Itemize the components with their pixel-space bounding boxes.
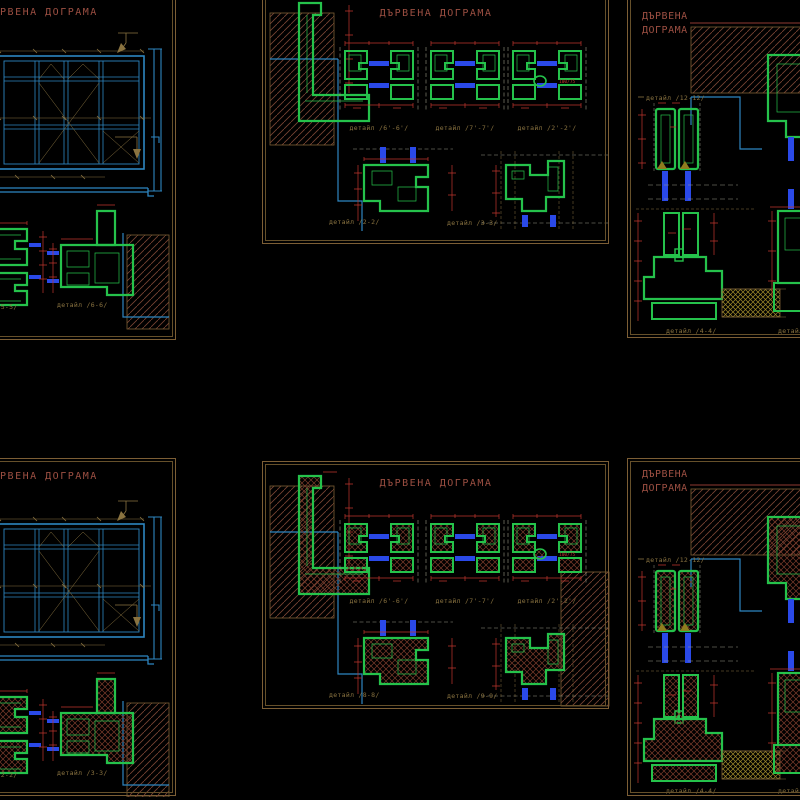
- sheet-title-line2: ДОГРАМА: [642, 25, 688, 36]
- sheet-title-line1: ДЪРВЕНА: [642, 469, 688, 480]
- wall-hatch: [561, 572, 609, 706]
- cad-drawing-canvas: ДЪРВЕНА ДОГРАМА детайл /5-5/ детайл /6-6…: [0, 0, 800, 800]
- sheet-bottom-right: ДЪРВЕНА ДОГРАМА детайл /12-12/ детайл /4…: [627, 458, 800, 796]
- detail-label: детайл: [778, 787, 800, 795]
- detail-label: детайл /3-3/: [57, 769, 108, 777]
- window-elevation-drawing: [0, 33, 169, 329]
- detail-label: детайл /2'-2'/: [518, 597, 577, 605]
- detail-label: детайл /4-4/: [666, 787, 717, 795]
- sheet-top-middle: ДЪРВЕНА ДОГРАМА детайл /6'-6'/ детайл /7…: [262, 0, 609, 244]
- joinery-sections-drawing: [270, 472, 608, 704]
- sheet-title-line1: ДЪРВЕНА: [642, 11, 688, 22]
- sheet-title: ДЪРВЕНА ДОГРАМА: [0, 7, 98, 18]
- sheet-bottom-left: ДЪРВЕНА ДОГРАМА детайл /2-2/ детайл /3-3…: [0, 458, 176, 796]
- detail-label: детайл /7'-7'/: [436, 597, 495, 605]
- detail-label: детайл /6'-6'/: [350, 597, 409, 605]
- detail-label: детайл /2-2/: [0, 771, 18, 779]
- sheet-bottom-middle: ДЪРВЕНА ДОГРАМА детайл /6'-6'/ детайл /7…: [262, 461, 609, 709]
- detail-label: детайл /7'-7'/: [436, 124, 495, 132]
- jamb-sill-sections-drawing: [634, 485, 800, 783]
- detail-label: детайл: [778, 327, 800, 335]
- detail-label: детайл /12-12/: [646, 556, 705, 564]
- detail-label: детайл /12-12/: [646, 94, 705, 102]
- size-note: 100/75: [559, 79, 576, 85]
- sheet-title: ДЪРВЕНА ДОГРАМА: [380, 8, 493, 19]
- sheet-top-left: ДЪРВЕНА ДОГРАМА детайл /5-5/ детайл /6-6…: [0, 0, 176, 340]
- detail-label: детайл /6-6/: [57, 301, 108, 309]
- sheet-top-right: ДЪРВЕНА ДОГРАМА детайл /12-12/ детайл /4…: [627, 0, 800, 338]
- jamb-sill-sections-drawing: [634, 23, 800, 321]
- joinery-sections-drawing: [270, 0, 608, 231]
- detail-label: детайл /8-8/: [329, 691, 380, 699]
- detail-label: детайл /3-3/: [447, 219, 498, 227]
- detail-label: детайл /2'-2'/: [518, 124, 577, 132]
- sheet-title: ДЪРВЕНА ДОГРАМА: [0, 471, 98, 482]
- detail-label: детайл /5-5/: [0, 303, 18, 311]
- sheet-title-line2: ДОГРАМА: [642, 483, 688, 494]
- size-note: 100/75: [559, 552, 576, 558]
- window-elevation-drawing: [0, 501, 169, 797]
- detail-label: детайл /9-9/: [447, 692, 498, 700]
- detail-label: детайл /6'-6'/: [350, 124, 409, 132]
- detail-label: детайл /2-2/: [329, 218, 380, 226]
- sheet-title: ДЪРВЕНА ДОГРАМА: [380, 478, 493, 489]
- detail-label: детайл /4-4/: [666, 327, 717, 335]
